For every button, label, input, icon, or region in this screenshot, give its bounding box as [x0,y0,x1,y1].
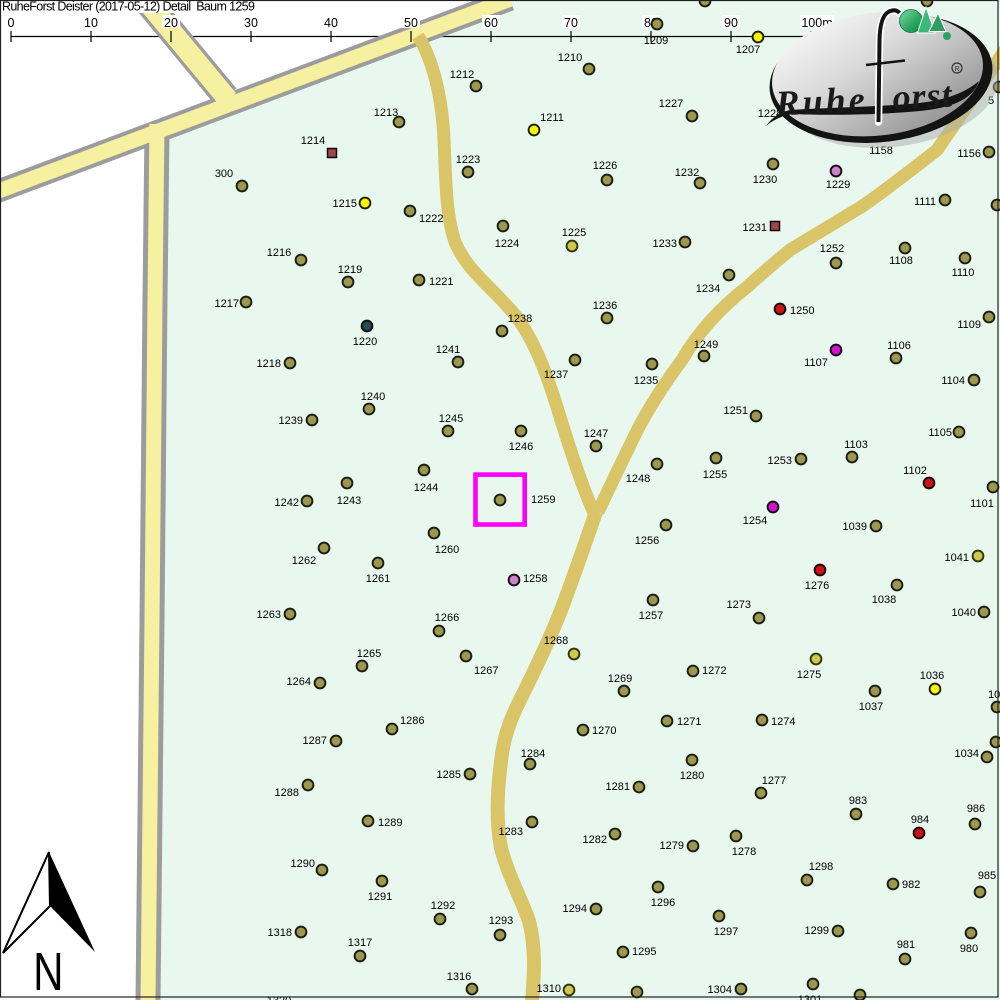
svg-text:1291: 1291 [368,891,392,903]
svg-text:1231: 1231 [743,222,767,234]
svg-text:1107: 1107 [804,357,828,369]
svg-text:orst: orst [891,74,953,117]
svg-text:1218: 1218 [257,358,281,370]
svg-text:1270: 1270 [592,725,616,737]
svg-text:1212: 1212 [450,69,474,81]
svg-text:1280: 1280 [680,770,704,782]
svg-text:1225: 1225 [562,227,586,239]
svg-text:20: 20 [164,16,178,30]
svg-text:1317: 1317 [348,937,372,949]
svg-text:1248: 1248 [626,473,650,485]
svg-text:1041: 1041 [945,552,969,564]
svg-text:1310: 1310 [537,983,561,995]
svg-text:1254: 1254 [743,515,767,527]
svg-text:1259: 1259 [531,494,555,506]
svg-text:980: 980 [960,943,978,955]
svg-text:1106: 1106 [887,340,911,352]
svg-text:1110: 1110 [952,267,975,279]
svg-text:1292: 1292 [431,900,455,912]
svg-text:1295: 1295 [632,946,656,958]
svg-text:1266: 1266 [435,612,459,624]
svg-text:90: 90 [724,16,738,30]
svg-text:1242: 1242 [275,497,299,509]
svg-text:1251: 1251 [724,405,748,417]
svg-text:1211: 1211 [540,112,564,124]
svg-text:1278: 1278 [732,846,756,858]
svg-text:10: 10 [84,16,98,30]
svg-text:1241: 1241 [436,344,460,356]
svg-text:1298: 1298 [809,861,833,873]
svg-text:1101: 1101 [970,498,994,510]
svg-text:30: 30 [244,16,258,30]
svg-text:1036: 1036 [920,670,944,682]
svg-text:1245: 1245 [439,413,463,425]
svg-text:1040: 1040 [952,607,976,619]
svg-text:1273: 1273 [727,599,751,611]
svg-text:1213: 1213 [374,107,398,119]
svg-text:1220: 1220 [353,336,377,348]
svg-text:1304: 1304 [708,984,732,996]
svg-text:1261: 1261 [366,573,390,585]
svg-text:70: 70 [564,16,578,30]
svg-text:1034: 1034 [955,748,979,760]
svg-text:982: 982 [902,879,920,891]
svg-text:1284: 1284 [521,748,545,760]
svg-text:1037: 1037 [859,701,883,713]
svg-text:1229: 1229 [826,179,850,191]
svg-text:1222: 1222 [419,213,443,225]
svg-text:1214: 1214 [301,135,325,147]
svg-text:1039: 1039 [843,521,867,533]
svg-text:1260: 1260 [435,544,459,556]
svg-text:1105: 1105 [928,427,952,439]
svg-text:1217: 1217 [215,298,239,310]
svg-text:1257: 1257 [639,610,663,622]
svg-text:1215: 1215 [333,198,357,210]
svg-text:N: N [33,942,63,1000]
svg-text:300: 300 [215,168,233,180]
svg-text:1271: 1271 [677,716,701,728]
svg-text:1256: 1256 [635,535,659,547]
svg-text:1283: 1283 [499,826,523,838]
svg-text:1239: 1239 [279,415,303,427]
svg-text:1264: 1264 [287,676,311,688]
svg-text:1250: 1250 [790,305,814,317]
svg-text:R: R [954,66,959,73]
svg-text:1316: 1316 [447,971,471,983]
svg-text:1299: 1299 [805,925,829,937]
svg-text:1103: 1103 [844,439,868,451]
svg-text:1156: 1156 [957,148,981,160]
svg-text:1269: 1269 [608,673,632,685]
svg-text:1223: 1223 [456,154,480,166]
svg-text:1227: 1227 [659,98,683,110]
svg-text:1294: 1294 [563,903,587,915]
svg-text:1207: 1207 [736,44,760,56]
svg-text:1038: 1038 [872,594,896,606]
svg-text:1265: 1265 [357,648,381,660]
svg-text:1289: 1289 [378,817,402,829]
svg-text:1286: 1286 [400,715,424,727]
svg-text:984: 984 [911,814,929,826]
svg-text:1253: 1253 [768,455,792,467]
svg-text:1216: 1216 [267,247,291,259]
svg-text:1262: 1262 [292,555,316,567]
svg-text:1109: 1109 [957,319,981,331]
svg-text:1209: 1209 [644,35,668,47]
svg-text:1276: 1276 [805,580,829,592]
svg-text:1255: 1255 [703,469,727,481]
svg-text:981: 981 [897,939,915,951]
svg-text:1290: 1290 [291,858,315,870]
svg-text:1224: 1224 [495,238,519,250]
svg-text:1236: 1236 [593,300,617,312]
svg-text:1219: 1219 [338,264,362,276]
svg-text:983: 983 [849,795,867,807]
svg-text:1244: 1244 [414,482,438,494]
svg-text:1275: 1275 [797,669,821,681]
svg-text:985: 985 [978,870,996,882]
svg-text:1318: 1318 [268,927,292,939]
svg-text:1272: 1272 [702,665,726,677]
svg-text:1263: 1263 [257,609,281,621]
svg-text:1111: 1111 [914,196,936,208]
svg-text:1226: 1226 [593,160,617,172]
svg-text:1247: 1247 [584,428,608,440]
svg-text:1235: 1235 [634,375,658,387]
svg-text:1285: 1285 [437,769,461,781]
svg-text:RuheForst Deister (2017-05-12): RuheForst Deister (2017-05-12) Detail Ba… [2,0,255,14]
svg-text:1279: 1279 [660,840,684,852]
svg-text:1288: 1288 [275,787,299,799]
svg-text:1249: 1249 [694,339,718,351]
svg-text:1210: 1210 [558,52,582,64]
svg-text:1234: 1234 [696,283,720,295]
svg-text:1258: 1258 [523,573,547,585]
svg-text:1240: 1240 [361,391,385,403]
svg-text:1296: 1296 [651,897,675,909]
svg-text:1281: 1281 [606,781,630,793]
svg-text:1274: 1274 [771,716,795,728]
svg-text:1287: 1287 [303,735,327,747]
svg-text:1268: 1268 [544,635,568,647]
svg-text:1246: 1246 [509,441,533,453]
svg-text:1297: 1297 [714,926,738,938]
svg-text:60: 60 [484,16,498,30]
svg-text:1102: 1102 [903,465,927,477]
svg-text:0: 0 [8,16,15,30]
svg-text:1221: 1221 [429,276,453,288]
svg-text:1293: 1293 [489,915,513,927]
svg-text:Ruhe: Ruhe [774,79,869,124]
svg-text:1237: 1237 [544,369,568,381]
svg-text:1252: 1252 [820,243,844,255]
svg-text:1233: 1233 [653,238,677,250]
svg-text:986: 986 [967,803,985,815]
svg-text:50: 50 [404,16,418,30]
svg-text:1232: 1232 [675,167,699,179]
svg-text:1277: 1277 [762,775,786,787]
svg-text:1267: 1267 [474,665,498,677]
svg-text:1104: 1104 [941,375,965,387]
svg-text:40: 40 [324,16,338,30]
svg-text:1238: 1238 [508,313,532,325]
svg-text:1108: 1108 [889,255,913,267]
svg-text:1243: 1243 [337,495,361,507]
svg-text:1230: 1230 [753,174,777,186]
svg-text:1282: 1282 [583,834,607,846]
